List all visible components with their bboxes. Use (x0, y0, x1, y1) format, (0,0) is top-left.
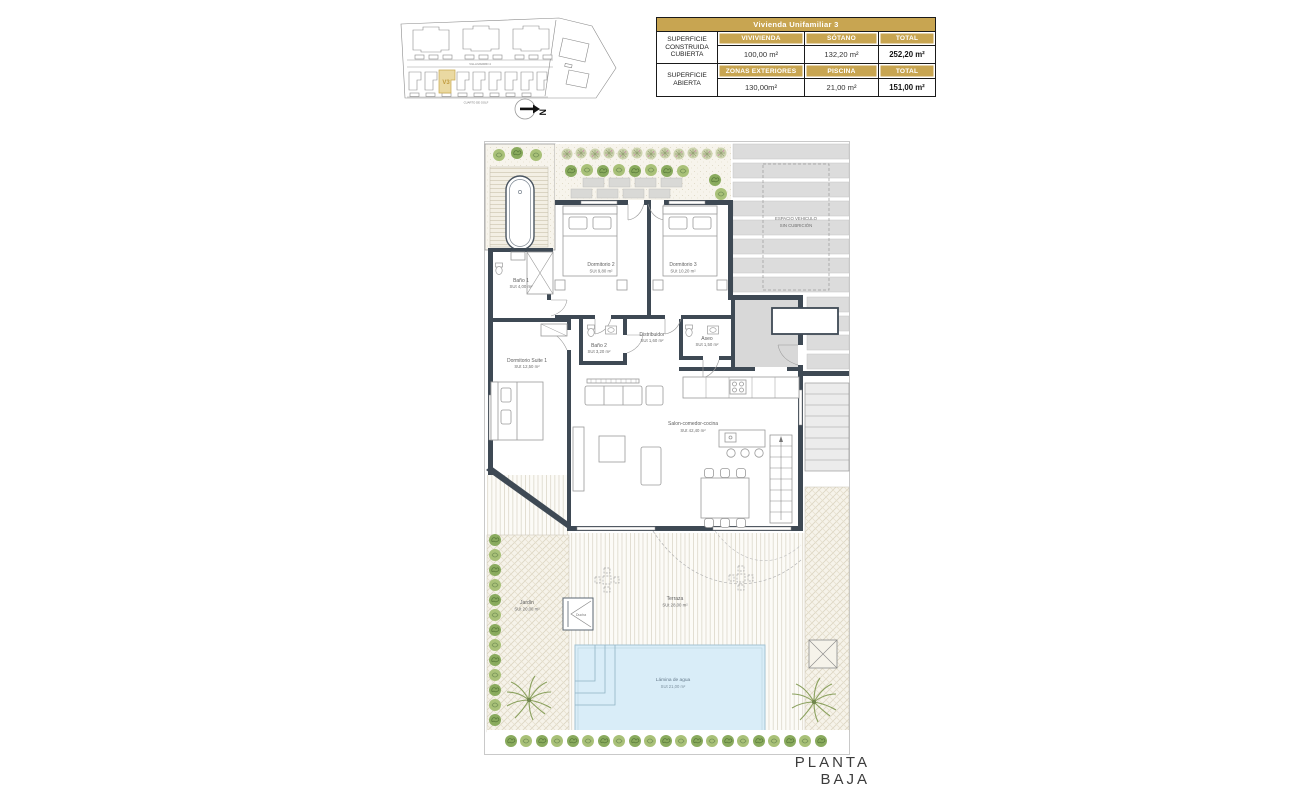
label-dormitorio3: Dormitorio 3 (669, 262, 696, 268)
svg-text:SUt 10,20 m²: SUt 10,20 m² (670, 269, 696, 274)
bed-dormitorio-2 (555, 206, 627, 290)
svg-text:SUt 1,60 m²: SUt 1,60 m² (641, 338, 664, 343)
value-vivienda: 100,00 m² (718, 46, 804, 63)
label-terraza: Terraza (667, 596, 684, 602)
header-vivivienda: VIVIVIENDA (718, 32, 804, 45)
pool: Lámina de agua SUt 21,00 m² (575, 645, 765, 740)
table-title: Vivienda Unifamiliar 3 (657, 18, 935, 31)
header-sotano: SÓTANO (805, 32, 878, 45)
entry-canopy (772, 308, 838, 334)
site-plan: VILLA MADRID 4 CUARTO DE GOLF V3 N (383, 10, 623, 132)
svg-text:SUt 1,50 m²: SUt 1,50 m² (696, 342, 719, 347)
planter-square (809, 640, 837, 668)
value-zonas-exteriores: 130,00m² (718, 79, 804, 96)
label-dormitorio2: Dormitorio 2 (587, 262, 614, 268)
plan-title: PLANTA BAJA (740, 754, 870, 788)
header-total-1: TOTAL (879, 32, 935, 45)
label-jardin: Jardín (520, 600, 534, 606)
dining-set (701, 469, 749, 528)
living-furniture (573, 379, 663, 491)
pool-area-label: SUt 21,00 m² (661, 684, 686, 689)
value-total-1: 252,20 m² (879, 46, 935, 63)
floor-plan: ESPACIO VEHICULO SIN CUBRICIÓN Lámina de… (483, 140, 851, 756)
site-houses-bottom (409, 72, 547, 97)
svg-text:SUt 42,40 m²: SUt 42,40 m² (680, 428, 706, 433)
unit-v3-label: V3 (442, 80, 450, 86)
vehicle-space-label-2: SIN CUBRICIÓN (780, 223, 812, 228)
svg-text:SUt 28,00 m²: SUt 28,00 m² (662, 603, 688, 608)
svg-text:SUt 12,50 m²: SUt 12,50 m² (514, 364, 540, 369)
aseo-fixtures (686, 325, 719, 337)
svg-text:SUt 9,80 m²: SUt 9,80 m² (590, 269, 613, 274)
vehicle-space-label-1: ESPACIO VEHICULO (775, 216, 818, 221)
section-superficie-construida: SUPERFICIE CONSTRUIDA CUBIERTA (657, 32, 717, 63)
value-total-2: 151,00 m² (879, 79, 935, 96)
front-garden-strip (555, 144, 731, 200)
north-label: N (538, 109, 548, 116)
street-bottom-label: CUARTO DE GOLF (464, 100, 489, 104)
interior-stair (770, 435, 792, 523)
surface-summary-table: Vivienda Unifamiliar 3 SUPERFICIE CONSTR… (656, 17, 936, 97)
basement-stair (805, 383, 849, 471)
patio-bathtub-area (485, 144, 555, 250)
label-salon: Salon-comedor-cocina (668, 421, 718, 427)
svg-text:SUt 3,20 m²: SUt 3,20 m² (588, 349, 611, 354)
bed-dormitorio-3 (653, 206, 727, 290)
header-total-2: TOTAL (879, 64, 935, 78)
bathtub (506, 176, 534, 250)
value-piscina: 21,00 m² (805, 79, 878, 96)
svg-text:SUt 20,00 m²: SUt 20,00 m² (514, 607, 540, 612)
north-arrow-icon: N (515, 99, 548, 119)
bathroom2-fixtures (588, 325, 617, 337)
hedge-bottom-row (487, 730, 849, 754)
bed-suite (491, 324, 567, 440)
header-piscina: PISCINA (805, 64, 878, 78)
street-top-label: VILLA MADRID 4 (469, 62, 491, 66)
section-superficie-abierta: SUPERFICIE ABIERTA (657, 64, 717, 96)
svg-text:SUt 4,00 m²: SUt 4,00 m² (510, 284, 533, 289)
outdoor-shower: Ducha (563, 598, 593, 630)
site-highlighted-unit: V3 (439, 70, 455, 93)
site-houses-annex (559, 38, 589, 88)
site-houses-top (413, 26, 552, 59)
shower-label: Ducha (576, 613, 586, 617)
value-sotano: 132,20 m² (805, 46, 878, 63)
header-zonas-exteriores: ZONAS EXTERIORES (718, 64, 804, 78)
pool-label: Lámina de agua (656, 677, 691, 683)
